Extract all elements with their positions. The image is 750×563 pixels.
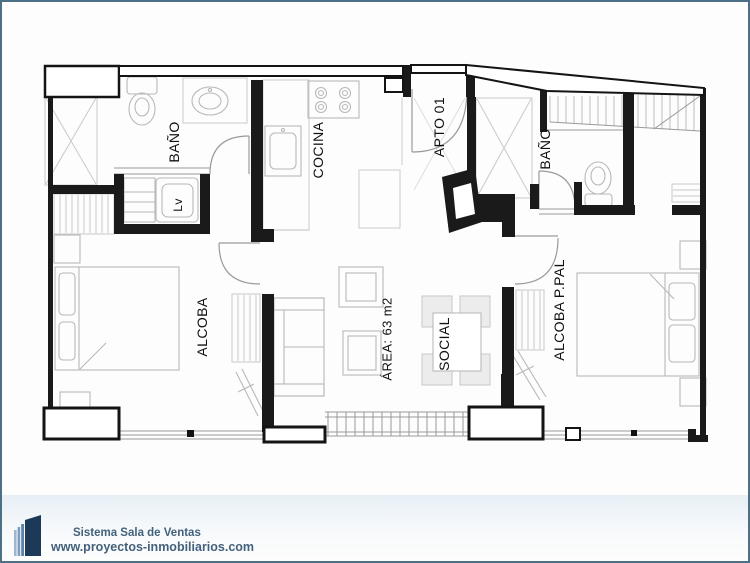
nightstand-alcoba bbox=[54, 235, 80, 263]
room-label-bano-right: BAÑO bbox=[537, 128, 553, 169]
tv-console bbox=[339, 267, 383, 307]
sloped-top-wall bbox=[466, 65, 704, 95]
brand-building-icon bbox=[14, 514, 44, 556]
kitchen-sink bbox=[265, 126, 301, 176]
brand: Sistema Sala de Ventas www.proyectos-inm… bbox=[14, 514, 254, 556]
room-label-alcoba: ALCOBA bbox=[194, 297, 210, 356]
room-label-alcoba-ppal: ALCOBA P.PAL bbox=[551, 259, 567, 361]
bed-ppal bbox=[577, 273, 699, 376]
brand-line1: Sistema Sala de Ventas bbox=[51, 526, 254, 540]
door-bano-left bbox=[210, 136, 249, 174]
brand-text: Sistema Sala de Ventas www.proyectos-inm… bbox=[51, 526, 254, 556]
windows bbox=[114, 98, 690, 439]
room-label-bano-left: BAÑO bbox=[166, 121, 182, 162]
balcony-rail bbox=[325, 412, 469, 436]
kitchen-counter bbox=[263, 80, 400, 230]
door-bano-right bbox=[539, 171, 575, 209]
walls-outlined bbox=[44, 65, 704, 442]
door-alcoba bbox=[219, 243, 260, 284]
coffee-table bbox=[343, 331, 381, 375]
room-label-cocina: COCINA bbox=[310, 121, 326, 178]
brand-line2: www.proyectos-inmobiliarios.com bbox=[51, 540, 254, 556]
toilet-left bbox=[127, 77, 157, 125]
toilet-right bbox=[585, 162, 612, 206]
sofa bbox=[274, 298, 324, 396]
dining-set bbox=[422, 296, 490, 385]
stove bbox=[308, 81, 359, 118]
shelf-top-right bbox=[672, 184, 702, 202]
board-ppal bbox=[512, 351, 546, 400]
floor-plan: BAÑO Lv COCINA APTO 01 BAÑO ALCOBA ÁREA:… bbox=[2, 2, 750, 563]
sink-left bbox=[183, 78, 247, 123]
room-label-social: SOCIAL bbox=[436, 317, 452, 371]
floor-plan-screenshot: BAÑO Lv COCINA APTO 01 BAÑO ALCOBA ÁREA:… bbox=[0, 0, 750, 563]
walls-solid bbox=[48, 65, 708, 442]
footer: Sistema Sala de Ventas www.proyectos-inm… bbox=[2, 495, 748, 561]
laundry-shelf bbox=[124, 178, 155, 222]
bed-alcoba bbox=[55, 267, 179, 370]
room-label-lavadero: Lv bbox=[171, 198, 185, 211]
column-window bbox=[566, 428, 580, 440]
room-label-area: ÁREA: 63 m2 bbox=[380, 297, 395, 380]
board-alcoba bbox=[236, 369, 264, 416]
room-label-apto: APTO 01 bbox=[431, 97, 447, 157]
